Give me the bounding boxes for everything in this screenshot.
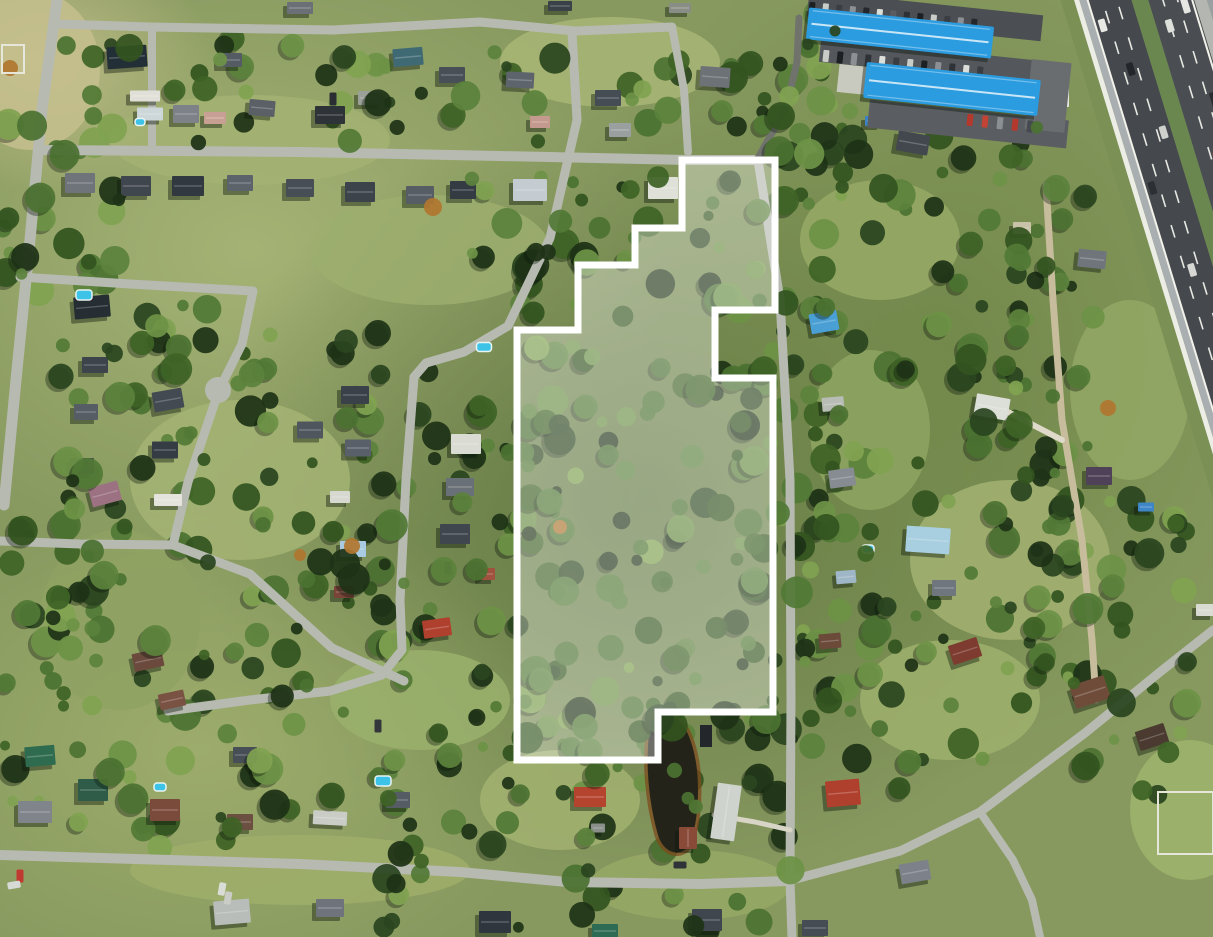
tree-icon (773, 57, 788, 72)
tree-icon (58, 635, 83, 660)
tree-icon (398, 578, 409, 589)
house (418, 617, 453, 643)
tree-icon (1071, 752, 1099, 780)
tree-icon (809, 256, 836, 283)
tree-icon (1001, 661, 1015, 675)
house (126, 91, 160, 106)
tree-icon (338, 129, 362, 153)
tree-icon (926, 312, 952, 338)
swimming-pool (76, 290, 92, 300)
tree-icon (992, 172, 1007, 187)
car (375, 720, 382, 733)
tree-icon (999, 144, 1023, 168)
house (146, 799, 180, 825)
tree-icon (48, 364, 73, 389)
tree-icon (746, 909, 773, 936)
tree-icon (767, 102, 795, 130)
car (674, 862, 687, 869)
tree-icon (549, 210, 572, 233)
house (168, 176, 204, 200)
tree-icon (300, 679, 314, 693)
tree-icon (25, 183, 55, 213)
house (341, 440, 371, 461)
tree-icon (941, 494, 955, 508)
house (588, 924, 618, 937)
tree-icon (842, 103, 858, 119)
tree-icon (569, 902, 595, 928)
parked-car (822, 50, 829, 63)
tree-icon (487, 45, 501, 59)
tree-icon (69, 741, 86, 758)
tree-icon (200, 554, 216, 570)
tree-icon (384, 750, 405, 771)
tree-icon (307, 457, 318, 468)
tree-icon (193, 327, 219, 353)
tree-icon (1100, 400, 1116, 416)
tree-icon (0, 550, 24, 575)
house (293, 422, 323, 443)
tree-icon (40, 661, 54, 675)
tree-icon (1072, 593, 1103, 624)
tree-icon (58, 701, 69, 712)
tree-icon (232, 483, 260, 511)
tree-icon (1107, 688, 1136, 717)
tree-icon (522, 301, 544, 323)
tree-icon (245, 623, 269, 647)
tree-icon (115, 34, 143, 62)
tree-icon (867, 447, 894, 474)
tree-icon (257, 412, 278, 433)
tree-icon (496, 811, 519, 834)
tree-icon (959, 232, 983, 256)
tree-icon (911, 456, 924, 469)
tree-icon (334, 329, 357, 352)
tree-icon (577, 828, 596, 847)
house (1082, 467, 1112, 489)
tree-icon (199, 650, 210, 661)
tree-icon (422, 422, 451, 451)
tree-icon (513, 922, 524, 933)
tree-icon (1167, 515, 1184, 532)
tree-icon (492, 208, 523, 239)
house (436, 524, 470, 548)
tree-icon (802, 561, 819, 578)
tree-icon (1005, 411, 1032, 438)
tree-icon (222, 817, 243, 838)
tree-icon (1035, 436, 1057, 458)
tree-icon (291, 623, 303, 635)
house (475, 911, 511, 937)
tree-icon (540, 244, 556, 260)
tree-icon (633, 80, 651, 98)
tree-icon (842, 744, 872, 774)
house (501, 71, 534, 93)
tree-icon (511, 784, 530, 803)
culdesac-bulb (205, 377, 231, 403)
tree-icon (193, 295, 222, 324)
tree-icon (344, 538, 360, 554)
tree-icon (84, 107, 102, 125)
parked-car (1011, 119, 1018, 132)
tree-icon (376, 509, 408, 541)
tree-icon (166, 746, 195, 775)
tree-icon (17, 111, 47, 141)
tree-icon (613, 762, 623, 772)
tree-icon (990, 596, 1002, 608)
tree-icon (1173, 689, 1202, 718)
tree-icon (830, 405, 848, 423)
tree-icon (479, 831, 507, 859)
parked-car (966, 114, 973, 127)
house (311, 106, 345, 128)
tree-icon (1046, 389, 1060, 403)
tree-icon (53, 228, 84, 259)
tree-icon (621, 180, 640, 199)
house (591, 90, 621, 110)
tree-icon (428, 452, 441, 465)
tree-icon (966, 432, 992, 458)
tree-icon (213, 52, 227, 66)
tree-icon (451, 81, 481, 111)
tree-icon (263, 327, 278, 342)
tree-icon (1004, 601, 1016, 613)
tree-icon (465, 172, 479, 186)
tree-icon (924, 197, 944, 217)
tree-icon (828, 599, 852, 623)
tree-icon (888, 640, 902, 654)
car (17, 870, 24, 883)
tree-icon (474, 664, 490, 680)
tree-icon (955, 344, 986, 375)
tree-icon (682, 792, 695, 805)
tree-icon (255, 517, 271, 533)
tree-icon (976, 300, 989, 313)
house (312, 899, 344, 921)
tree-icon (795, 639, 815, 659)
tree-icon (431, 557, 457, 583)
tree-icon (809, 219, 839, 249)
house (814, 633, 842, 654)
tree-icon (14, 600, 40, 626)
tree-icon (683, 915, 704, 936)
tree-icon (46, 585, 70, 609)
tree-icon (1170, 537, 1186, 553)
tree-icon (469, 395, 490, 416)
parked-car (981, 115, 988, 128)
house (824, 467, 857, 493)
tree-icon (808, 427, 823, 442)
house (341, 182, 375, 206)
tree-icon (794, 139, 824, 169)
tree-icon (466, 558, 488, 580)
tree-icon (728, 893, 746, 911)
tree-icon (415, 87, 428, 100)
house (223, 175, 253, 195)
tree-icon (888, 777, 910, 799)
tree-icon (197, 453, 210, 466)
tree-icon (373, 917, 394, 937)
tree-icon (371, 471, 396, 496)
tree-icon (1171, 578, 1197, 604)
tree-icon (492, 514, 509, 531)
tree-icon (371, 599, 398, 626)
tree-icon (371, 365, 390, 384)
tree-icon (912, 490, 939, 517)
tree-icon (951, 145, 977, 171)
tree-icon (403, 818, 417, 832)
tree-icon (490, 701, 502, 713)
tree-icon (89, 654, 103, 668)
tree-icon (160, 353, 192, 385)
tree-icon (1104, 496, 1116, 508)
tree-icon (1132, 780, 1152, 800)
tree-icon (1101, 574, 1124, 597)
tree-icon (478, 742, 488, 752)
tree-icon (816, 298, 835, 317)
tree-icon (164, 79, 186, 101)
tree-icon (581, 863, 595, 877)
tree-icon (896, 360, 915, 379)
tree-icon (0, 741, 10, 751)
tree-icon (501, 61, 512, 72)
tree-icon (130, 455, 156, 481)
tree-icon (429, 724, 448, 743)
swimming-pool (375, 776, 391, 786)
tree-icon (556, 785, 571, 800)
tree-icon (585, 761, 610, 786)
tree-icon (319, 783, 345, 809)
tree-icon (66, 474, 79, 487)
tree-icon (467, 248, 478, 259)
tree-icon (742, 775, 758, 791)
house (544, 1, 572, 15)
tree-icon (82, 45, 105, 68)
tree-icon (1082, 441, 1092, 451)
tree-icon (964, 566, 978, 580)
house (447, 434, 481, 458)
tree-icon (365, 89, 392, 116)
tree-icon (910, 610, 921, 621)
tree-icon (802, 39, 813, 50)
tree-icon (282, 713, 305, 736)
tree-icon (226, 642, 244, 660)
tree-icon (983, 501, 1008, 526)
tree-icon (871, 720, 888, 737)
tree-icon (1011, 692, 1032, 713)
tree-icon (271, 638, 301, 668)
tree-icon (799, 733, 825, 759)
tree-icon (338, 563, 370, 595)
house (928, 580, 956, 600)
tree-icon (758, 92, 772, 106)
tree-icon (1173, 726, 1187, 740)
tree-icon (105, 382, 135, 412)
tree-icon (1004, 244, 1029, 269)
tree-icon (843, 329, 868, 354)
tree-icon (118, 783, 149, 814)
tree-icon (654, 97, 681, 124)
tree-icon (338, 707, 349, 718)
tree-icon (475, 181, 494, 200)
tree-icon (978, 209, 1001, 232)
house (283, 2, 313, 18)
swimming-pool (154, 783, 166, 791)
swimming-pool (477, 343, 492, 352)
tree-icon (845, 705, 857, 717)
tree-icon (192, 76, 217, 101)
tree-icon (260, 789, 290, 819)
tree-icon (522, 90, 548, 116)
tree-icon (414, 854, 429, 869)
tree-icon (452, 492, 472, 512)
house (901, 525, 951, 558)
tree-icon (727, 116, 747, 136)
tree-icon (68, 582, 89, 603)
tree-icon (916, 641, 937, 662)
tree-icon (502, 777, 515, 790)
tree-icon (332, 45, 356, 69)
tree-icon (461, 824, 477, 840)
tree-icon (1026, 585, 1050, 609)
tree-icon (1068, 677, 1080, 689)
tree-icon (931, 260, 954, 283)
tree-icon (1031, 121, 1043, 133)
tree-icon (1007, 325, 1029, 347)
tree-icon (247, 748, 273, 774)
tree-icon (844, 140, 873, 169)
tree-icon (803, 198, 815, 210)
tree-icon (711, 100, 733, 122)
tree-icon (1051, 590, 1064, 603)
tree-icon (50, 140, 80, 170)
tree-icon (1043, 175, 1070, 202)
tree-icon (1109, 734, 1119, 744)
house (78, 357, 108, 377)
tree-icon (64, 498, 85, 519)
tree-icon (271, 684, 294, 707)
tree-icon (844, 441, 864, 461)
house (821, 779, 861, 812)
tree-icon (776, 856, 804, 884)
car (330, 93, 337, 106)
tree-icon (177, 300, 189, 312)
tree-icon (66, 618, 79, 631)
tree-icon (1017, 466, 1034, 483)
tree-icon (575, 194, 588, 207)
tree-icon (1042, 519, 1057, 534)
tree-icon (943, 697, 959, 713)
tree-icon (437, 743, 462, 768)
tree-icon (388, 841, 414, 867)
house (61, 173, 95, 197)
tree-icon (1158, 741, 1180, 763)
tree-icon (937, 167, 949, 179)
swimming-pool (135, 119, 145, 126)
tree-icon (567, 176, 579, 188)
tree-icon (531, 134, 545, 148)
tree-icon (386, 874, 405, 893)
tree-icon (647, 166, 669, 188)
tree-icon (218, 724, 237, 743)
tree-icon (81, 254, 97, 270)
tree-icon (323, 521, 344, 542)
house (169, 105, 199, 127)
tree-icon (191, 135, 206, 150)
tree-icon (1037, 257, 1056, 276)
tree-icon (82, 696, 102, 716)
tree-icon (813, 514, 839, 540)
tree-icon (861, 615, 891, 645)
tree-icon (239, 362, 265, 388)
tree-icon (46, 610, 61, 625)
tree-icon (970, 408, 998, 436)
tree-icon (589, 217, 611, 239)
house (148, 442, 178, 463)
tree-icon (1009, 381, 1024, 396)
tree-icon (175, 427, 194, 446)
tree-icon (81, 540, 104, 563)
tree-icon (1067, 365, 1091, 389)
tree-icon (816, 687, 842, 713)
tree-icon (1178, 652, 1197, 671)
house (388, 47, 424, 72)
tree-icon (281, 34, 305, 58)
house (308, 810, 347, 830)
tree-icon (1028, 541, 1054, 567)
tree-icon (56, 338, 70, 352)
tree-icon (1023, 617, 1045, 639)
tree-icon (975, 752, 989, 766)
tree-icon (16, 268, 27, 279)
tree-icon (1114, 622, 1131, 639)
tree-icon (800, 386, 819, 405)
tree-icon (57, 36, 76, 55)
tree-icon (1030, 224, 1044, 238)
tree-icon (7, 796, 18, 807)
tree-icon (995, 355, 1016, 376)
tree-icon (379, 558, 391, 570)
tree-icon (11, 243, 39, 271)
parked-car (850, 53, 857, 66)
tree-icon (390, 120, 405, 135)
dark-trailer (700, 725, 712, 747)
house (798, 920, 828, 937)
tree-icon (1082, 306, 1105, 329)
tree-icon (1073, 185, 1097, 209)
tree-icon (90, 561, 119, 590)
tree-icon (948, 728, 979, 759)
tree-icon (84, 621, 100, 637)
tree-icon (857, 545, 874, 562)
house (150, 494, 182, 510)
tree-icon (667, 763, 682, 778)
tree-icon (294, 549, 306, 561)
tree-icon (861, 523, 878, 540)
tree-icon (105, 345, 122, 362)
tree-icon (468, 709, 485, 726)
tree-icon (815, 365, 833, 383)
tree-icon (806, 86, 835, 115)
tree-icon (878, 681, 905, 708)
tree-icon (69, 813, 88, 832)
house (282, 179, 314, 201)
tree-icon (239, 85, 254, 100)
house (570, 787, 606, 811)
tree-icon (897, 750, 921, 774)
tree-icon (539, 43, 570, 74)
tree-icon (8, 516, 38, 546)
house (20, 745, 56, 772)
